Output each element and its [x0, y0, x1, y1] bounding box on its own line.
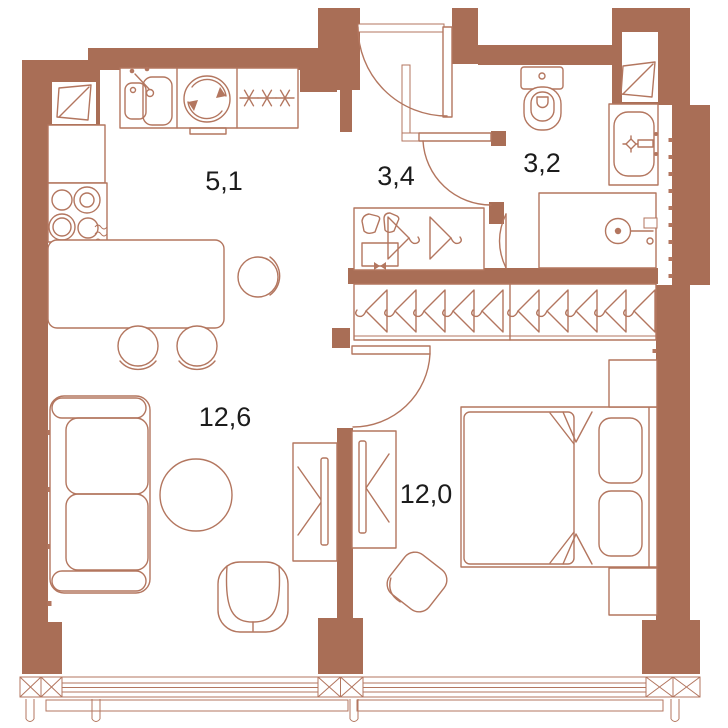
pouf	[381, 547, 452, 618]
washbasin	[609, 104, 658, 185]
panoramic-window-living	[62, 677, 318, 697]
room-label-bathroom: 3,2	[523, 148, 561, 178]
pier-hatch-center	[318, 677, 363, 697]
room-label-bedroom: 12,0	[400, 479, 453, 509]
room-label-living-room: 12,6	[199, 402, 252, 432]
tv-unit-bedroom	[352, 431, 396, 548]
bed	[461, 407, 657, 567]
window-sills	[26, 699, 679, 722]
kitchen-island	[48, 240, 224, 328]
living-room-door	[352, 346, 430, 427]
vent-window-topleft	[52, 82, 96, 124]
room-label-kitchen-living: 5,1	[205, 166, 243, 196]
partition-walls	[402, 65, 419, 141]
pier-hatch-left	[20, 677, 62, 697]
coffee-table	[160, 459, 232, 531]
vent-window-topright	[621, 32, 658, 102]
closet-hanger-rail	[354, 284, 656, 340]
pier-hatch-right	[646, 677, 700, 697]
panoramic-window-bedroom	[363, 677, 646, 697]
floor-plan: 5,1 3,4 3,2 12,6 12,0	[0, 0, 728, 728]
hall-wardrobe	[354, 208, 484, 270]
tv-unit-living	[293, 443, 337, 561]
toilet	[521, 67, 563, 130]
shower	[539, 193, 657, 268]
sofa	[50, 396, 150, 593]
bathroom-door	[419, 133, 491, 205]
cooktop	[48, 183, 107, 243]
room-label-hallway: 3,4	[377, 161, 415, 191]
kitchen-cabinet	[48, 125, 105, 183]
armchair	[218, 562, 288, 632]
floor-plan-svg: 5,1 3,4 3,2 12,6 12,0	[0, 0, 728, 728]
